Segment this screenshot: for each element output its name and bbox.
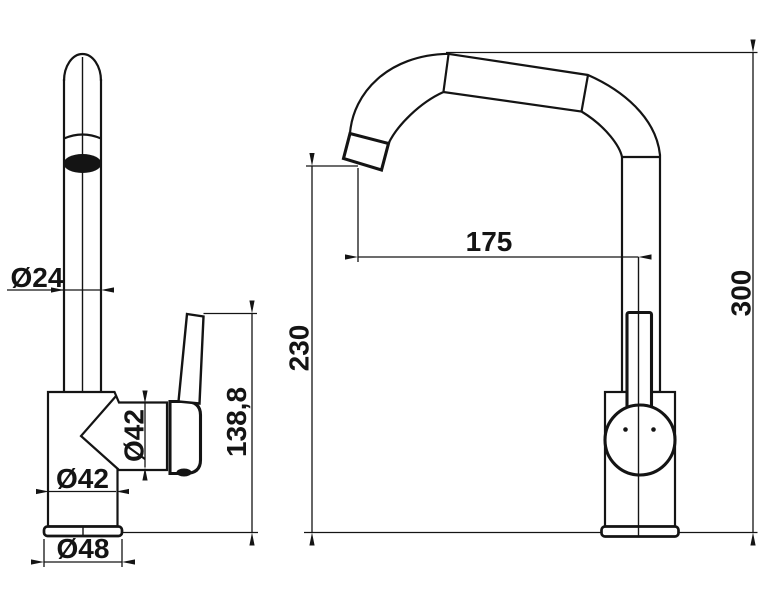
- dimension-cartridge-diameter: Ø42: [119, 404, 150, 468]
- handle-cap: [170, 402, 201, 474]
- dim-label-spout-tube-diameter: Ø24: [11, 262, 64, 293]
- technical-drawing-canvas: Ø24 Ø42 Ø42 Ø48 138,8: [0, 0, 782, 600]
- dimension-base-diameter: Ø48: [44, 533, 122, 567]
- dimension-spout-tube-diameter: Ø24: [7, 262, 101, 293]
- dimension-spout-outlet-height: 230: [284, 166, 359, 533]
- aerator-outlet-opening: [64, 154, 102, 173]
- dimension-spout-reach: 175: [358, 168, 639, 262]
- dim-label-body-diameter: Ø42: [56, 463, 109, 494]
- side-view: 175 230 300: [284, 53, 758, 537]
- dimension-body-diameter: Ø42: [49, 463, 116, 494]
- handle-pivot: [177, 469, 192, 477]
- front-view: Ø24 Ø42 Ø42 Ø48 138,8: [7, 54, 258, 567]
- gooseneck-spout: [350, 54, 660, 392]
- dim-label-overall-height: 300: [726, 270, 757, 317]
- faucet-dimension-drawing: Ø24 Ø42 Ø42 Ø48 138,8: [0, 0, 782, 600]
- dim-label-spout-outlet-height: 230: [284, 325, 315, 372]
- dim-label-handle-height: 138,8: [221, 387, 252, 457]
- dim-label-base-diameter: Ø48: [57, 533, 110, 564]
- dim-label-spout-reach: 175: [466, 226, 513, 257]
- base-plate-side: [602, 527, 679, 537]
- joint-dot-left: [623, 427, 628, 432]
- handle-joint-sphere: [605, 405, 675, 475]
- dim-label-cartridge-diameter: Ø42: [119, 409, 150, 462]
- dimension-handle-height: 138,8: [204, 314, 258, 533]
- handle-lever: [179, 314, 204, 404]
- handle-stem-side: [627, 313, 652, 413]
- joint-dot-right: [651, 427, 656, 432]
